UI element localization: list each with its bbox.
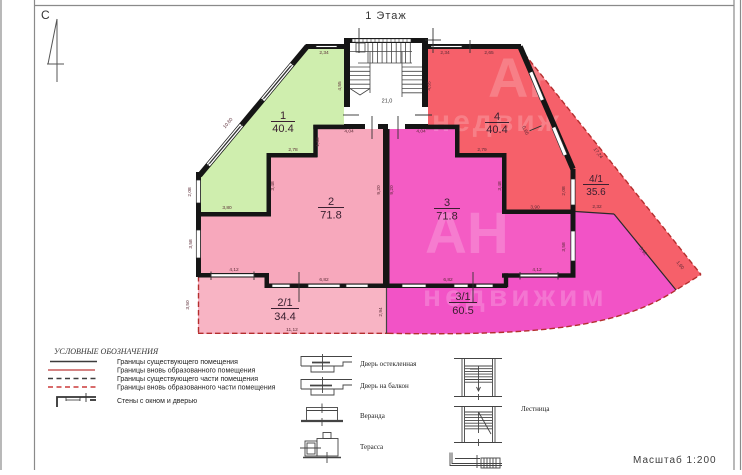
svg-text:Веранда: Веранда bbox=[360, 412, 386, 420]
svg-text:2,34: 2,34 bbox=[440, 50, 450, 56]
svg-text:Стены с окном и дверью: Стены с окном и дверью bbox=[117, 398, 197, 405]
svg-text:Масштаб 1:200: Масштаб 1:200 bbox=[633, 454, 717, 466]
svg-text:УСЛОВНЫЕ ОБОЗНАЧЕНИЯ: УСЛОВНЫЕ ОБОЗНАЧЕНИЯ bbox=[54, 347, 159, 356]
svg-text:3,90: 3,90 bbox=[530, 205, 540, 211]
svg-text:1: 1 bbox=[280, 110, 286, 122]
svg-text:3/1: 3/1 bbox=[455, 291, 470, 303]
svg-text:11,12: 11,12 bbox=[286, 327, 298, 333]
svg-text:1,60: 1,60 bbox=[315, 137, 321, 147]
svg-text:С: С bbox=[41, 8, 50, 22]
svg-text:4: 4 bbox=[494, 111, 500, 123]
svg-text:2,78: 2,78 bbox=[288, 147, 298, 153]
svg-text:40.4: 40.4 bbox=[486, 124, 507, 136]
svg-text:Дверь на балкон: Дверь на балкон bbox=[360, 382, 409, 390]
svg-text:3,48: 3,48 bbox=[497, 181, 503, 191]
svg-text:3,58: 3,58 bbox=[561, 242, 567, 252]
svg-text:2: 2 bbox=[328, 196, 334, 208]
svg-text:2,34: 2,34 bbox=[319, 50, 329, 56]
svg-text:35.6: 35.6 bbox=[586, 187, 606, 198]
svg-text:Лестница: Лестница bbox=[521, 405, 550, 413]
svg-text:6,82: 6,82 bbox=[319, 277, 329, 283]
svg-text:4,55: 4,55 bbox=[337, 81, 343, 91]
svg-text:71.8: 71.8 bbox=[320, 210, 341, 222]
svg-text:21,0: 21,0 bbox=[382, 99, 393, 105]
svg-text:4,04: 4,04 bbox=[344, 129, 354, 135]
svg-text:1 Этаж: 1 Этаж bbox=[365, 10, 406, 22]
svg-text:Границы существующего помещени: Границы существующего помещения bbox=[117, 359, 238, 366]
svg-text:71.8: 71.8 bbox=[436, 211, 457, 223]
svg-text:Терасса: Терасса bbox=[360, 443, 384, 451]
svg-text:Дверь остекленная: Дверь остекленная bbox=[360, 360, 417, 368]
svg-text:2,79: 2,79 bbox=[477, 147, 487, 153]
svg-text:4,12: 4,12 bbox=[229, 267, 239, 273]
svg-text:9,20: 9,20 bbox=[376, 185, 382, 195]
svg-text:3,58: 3,58 bbox=[188, 239, 194, 249]
svg-text:3,50: 3,50 bbox=[185, 300, 191, 310]
svg-text:34.4: 34.4 bbox=[274, 311, 295, 323]
svg-text:2,32: 2,32 bbox=[592, 204, 602, 210]
svg-text:9,20: 9,20 bbox=[389, 185, 395, 195]
svg-text:АН: АН bbox=[488, 46, 569, 109]
svg-text:Границы вновь образованного ча: Границы вновь образованного части помеще… bbox=[117, 384, 276, 392]
svg-text:Границы существующего части по: Границы существующего части помещения bbox=[117, 376, 258, 383]
svg-text:Границы вновь образованного по: Границы вновь образованного помещения bbox=[117, 367, 256, 375]
svg-text:2,08: 2,08 bbox=[561, 186, 567, 196]
svg-text:4,12: 4,12 bbox=[532, 267, 542, 273]
svg-text:4,55: 4,55 bbox=[427, 81, 433, 91]
svg-text:40.4: 40.4 bbox=[272, 123, 293, 135]
svg-text:4,04: 4,04 bbox=[416, 129, 426, 135]
svg-text:60.5: 60.5 bbox=[452, 305, 473, 317]
svg-text:2,65: 2,65 bbox=[484, 50, 494, 56]
svg-text:3,80: 3,80 bbox=[222, 205, 232, 211]
svg-text:6,82: 6,82 bbox=[443, 277, 453, 283]
svg-text:2,94: 2,94 bbox=[378, 307, 384, 317]
svg-text:3,48: 3,48 bbox=[270, 181, 276, 191]
svg-text:2,08: 2,08 bbox=[187, 187, 193, 197]
svg-text:3: 3 bbox=[444, 197, 450, 209]
svg-text:2/1: 2/1 bbox=[277, 297, 292, 309]
svg-text:4/1: 4/1 bbox=[589, 174, 603, 185]
